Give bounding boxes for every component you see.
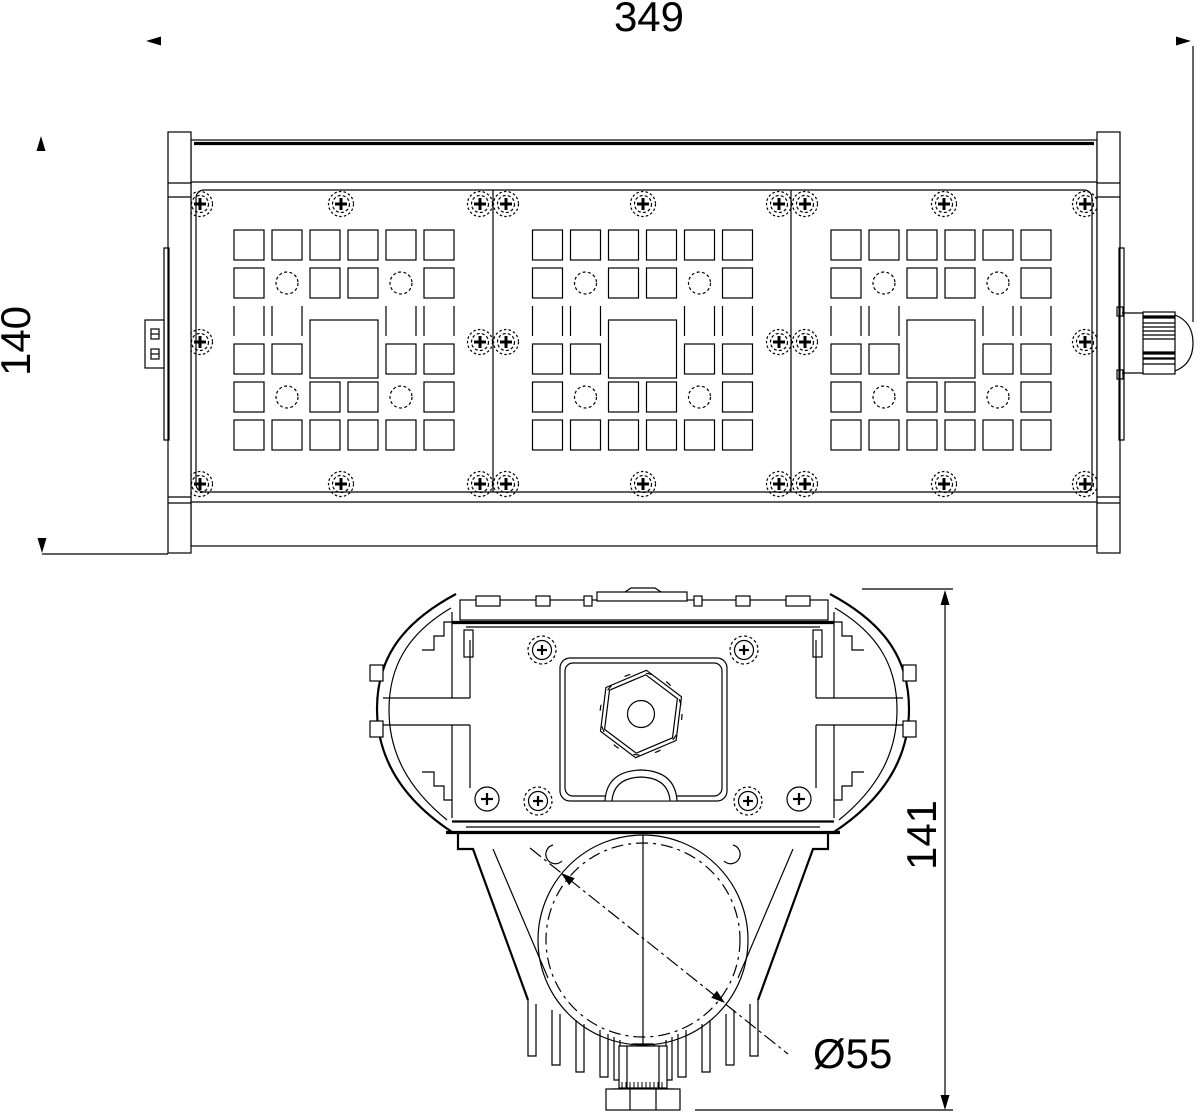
dim-arrow-bottom — [941, 1095, 950, 1110]
panel-screw — [494, 330, 519, 355]
dim-arrow-right — [1176, 37, 1191, 46]
section-screw — [787, 787, 811, 811]
led-module-2 — [533, 230, 753, 450]
panel-screw — [767, 472, 792, 497]
dim-arrow-top — [941, 590, 950, 605]
left-end-cap — [168, 132, 191, 553]
cable-gland — [1117, 248, 1193, 440]
dim-arrow-bottom — [38, 538, 47, 553]
right-end-cap — [1097, 132, 1120, 553]
top-plate — [452, 588, 834, 657]
panel-screw — [631, 472, 656, 497]
dim-arrow-left — [146, 37, 161, 46]
panel-screw — [1073, 472, 1098, 497]
panel-screw — [468, 330, 493, 355]
heatsink-fins — [528, 1000, 620, 1080]
panel-screw — [329, 472, 354, 497]
pole-hole — [538, 835, 748, 1046]
mounting-bolt — [606, 1044, 680, 1110]
panel-frame — [196, 190, 1092, 492]
panel-screw — [494, 472, 519, 497]
section-screw — [528, 636, 556, 664]
dim-height-label: 140 — [0, 306, 39, 376]
panel-screw — [932, 192, 957, 217]
clamp-arm — [458, 833, 528, 1000]
panel-screw — [767, 330, 792, 355]
dim-section-height-label: 141 — [898, 800, 945, 870]
panel-screw — [1073, 192, 1098, 217]
dim-arrow-top — [37, 136, 46, 151]
section-screw — [730, 636, 758, 664]
dim-width-label: 349 — [614, 0, 684, 40]
panel-screw — [793, 330, 818, 355]
front-view: 349 140 — [0, 0, 1193, 554]
panel-screw — [793, 472, 818, 497]
panel-screw — [329, 192, 354, 217]
panel-screw — [468, 192, 493, 217]
dim-height: 140 — [0, 136, 168, 554]
panel-screw — [767, 192, 792, 217]
section-screw — [524, 787, 552, 815]
panel-screw — [793, 192, 818, 217]
section-screw — [475, 787, 499, 811]
led-module-1 — [234, 230, 454, 450]
power-connector — [145, 248, 169, 440]
dia-arrow-lower — [711, 991, 725, 1003]
front-screws — [188, 192, 1098, 497]
center-block — [560, 658, 727, 801]
led-modules — [234, 230, 1051, 450]
dim-width: 349 — [146, 0, 1193, 322]
dim-diameter-label: Ø55 — [813, 1030, 892, 1077]
panel-screw — [494, 192, 519, 217]
section-screw — [734, 787, 762, 815]
dia-arrow-upper — [561, 873, 575, 885]
panel-screw — [631, 192, 656, 217]
led-module-3 — [831, 230, 1051, 450]
panel-screw — [1073, 330, 1098, 355]
technical-drawing: 349 140 — [0, 0, 1200, 1117]
panel-screw — [468, 472, 493, 497]
section-view: Ø55 141 — [370, 588, 953, 1110]
drawing-canvas: 349 140 — [0, 0, 1200, 1117]
panel-screw — [932, 472, 957, 497]
